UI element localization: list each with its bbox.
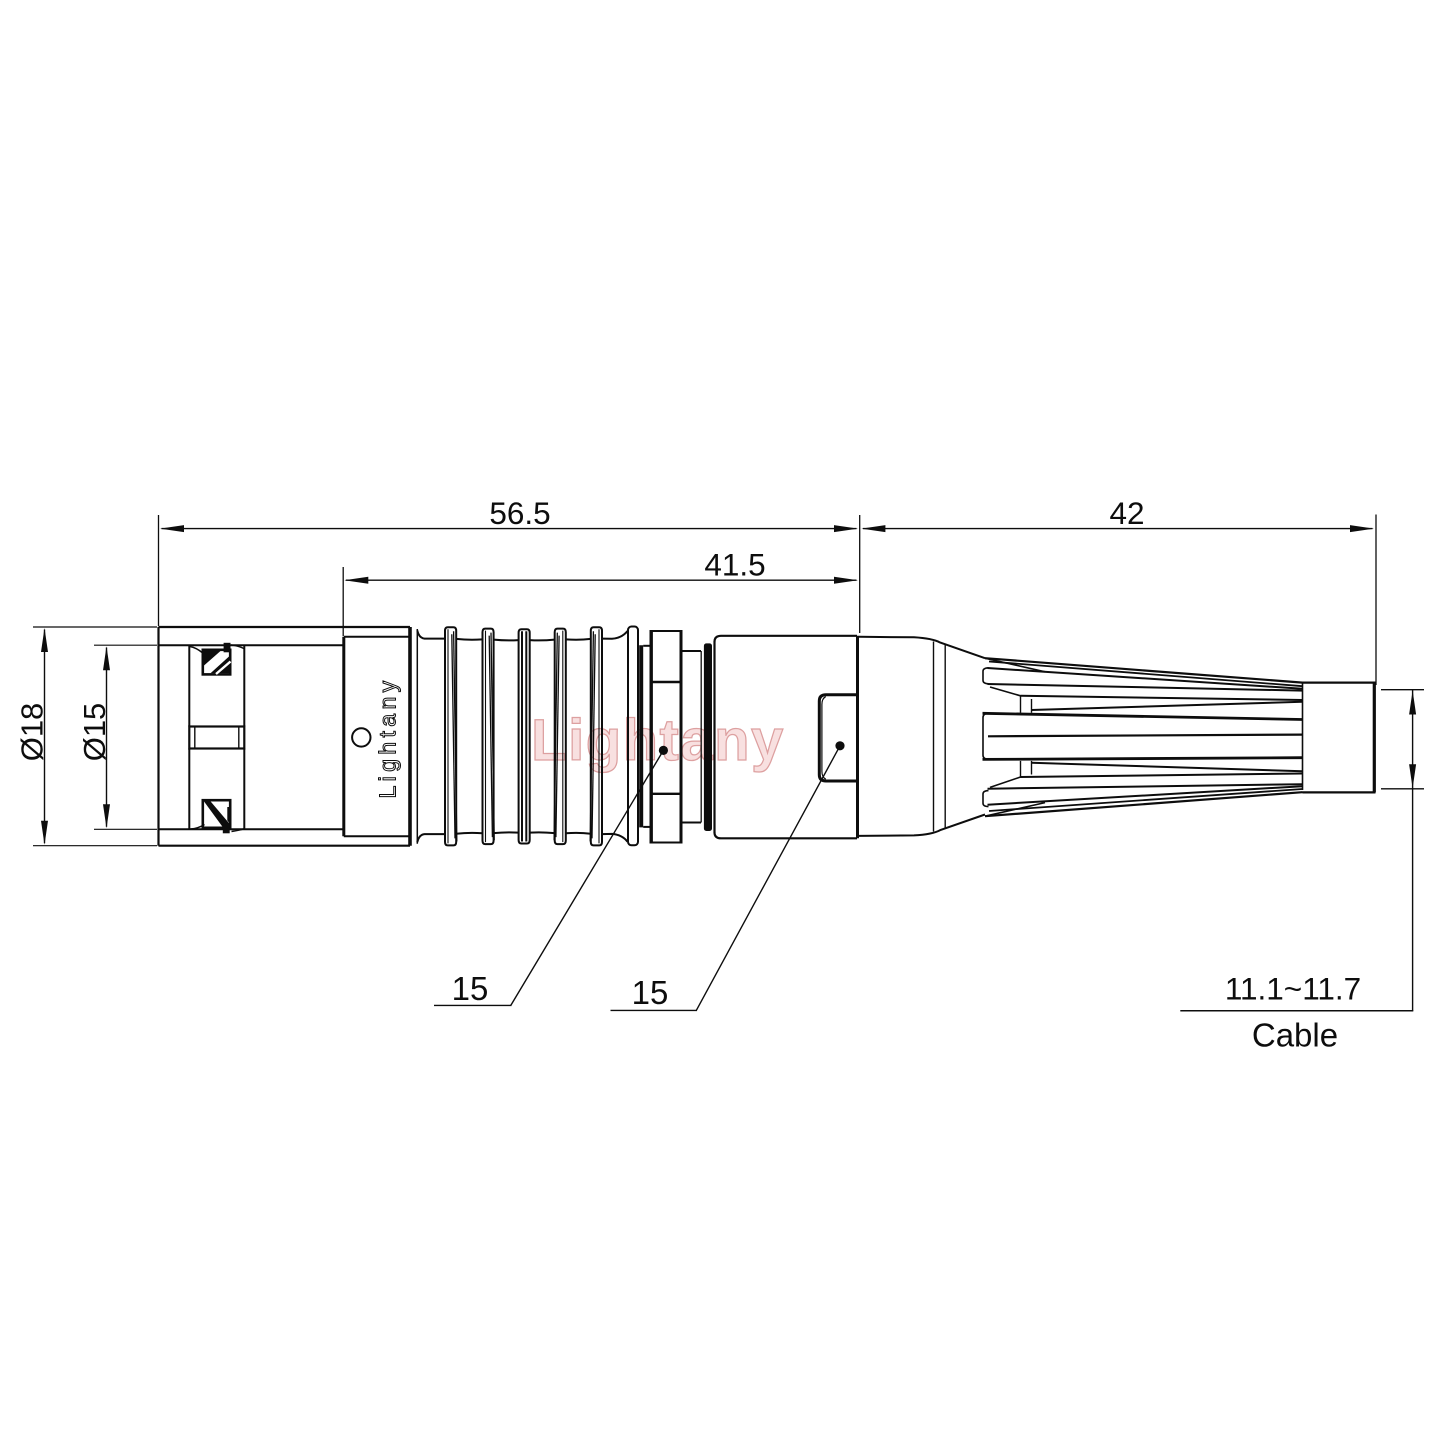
svg-text:Cable: Cable: [1252, 1017, 1338, 1054]
svg-text:Lightany: Lightany: [531, 708, 785, 773]
svg-text:15: 15: [632, 974, 669, 1011]
svg-text:Lightany: Lightany: [375, 676, 401, 798]
svg-text:15: 15: [452, 970, 489, 1007]
svg-text:11.1~11.7: 11.1~11.7: [1225, 971, 1361, 1007]
svg-text:Ø18: Ø18: [15, 703, 50, 762]
svg-text:56.5: 56.5: [489, 495, 550, 531]
svg-text:Ø15: Ø15: [77, 703, 112, 762]
svg-text:41.5: 41.5: [704, 547, 765, 583]
svg-text:42: 42: [1109, 495, 1144, 531]
